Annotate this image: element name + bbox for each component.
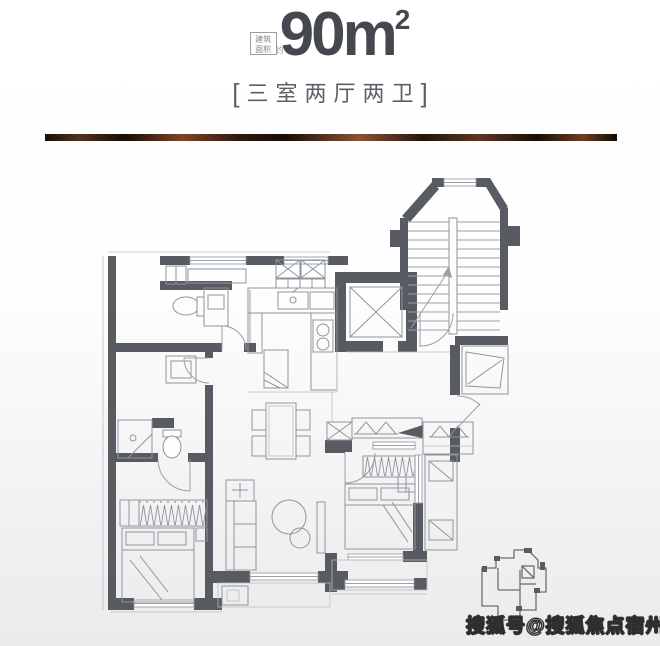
- window-bedroom: [134, 600, 194, 607]
- side-table: [226, 480, 254, 501]
- stair-direction-arrow: [411, 266, 452, 328]
- wardrobe-icon-2: [363, 456, 415, 477]
- entry-door-icon: [457, 396, 480, 428]
- floorplan-page: 建筑 面积 约 90m2 [三室两厅两卫]: [0, 0, 660, 646]
- fridge-icon: [264, 350, 288, 388]
- watermark-text: 搜狐号@搜狐焦点宿州站: [466, 611, 660, 638]
- ac-platform-east: [425, 455, 457, 550]
- utility-strip: [218, 583, 330, 607]
- door-arc-bedroom-left: [158, 459, 190, 491]
- sink-icon: [278, 288, 308, 309]
- elevator: [350, 287, 402, 337]
- toilet-icon: [173, 297, 204, 316]
- bed-icon-2: [345, 484, 415, 549]
- window-master-north: [373, 442, 415, 449]
- bathroom-lower: [118, 356, 209, 458]
- window-master-south: [348, 554, 403, 560]
- foyer: [327, 346, 508, 440]
- tv-cabinet: [317, 502, 325, 553]
- coffee-table-icon: [272, 500, 310, 548]
- door-arc-bath1: [222, 326, 246, 350]
- floor-plan: [0, 0, 660, 646]
- dining-table-icon: [266, 403, 296, 459]
- toilet-icon-2: [163, 430, 181, 458]
- living-room: [218, 480, 330, 607]
- vanity-icon: [204, 288, 228, 326]
- stove-icon: [313, 320, 333, 352]
- key-plan: [482, 548, 546, 620]
- sofa-icon: [226, 501, 256, 570]
- shoe-cabinet: [327, 422, 352, 440]
- bedroom-left: [120, 459, 207, 602]
- bed-icon: [122, 528, 194, 602]
- window-balcony: [345, 580, 414, 587]
- console-desk: [466, 352, 504, 388]
- window-master-east: [415, 455, 422, 503]
- wardrobe-icon: [120, 500, 207, 526]
- dining-area: [252, 403, 310, 459]
- master-bedroom: [332, 453, 427, 590]
- sink-icon-2: [166, 356, 196, 383]
- staircase: [408, 218, 500, 347]
- window-laundry: [190, 257, 246, 264]
- kitchen: [248, 288, 337, 392]
- window-stair: [444, 179, 476, 186]
- window-living: [250, 573, 318, 580]
- bathroom-top: [173, 288, 250, 350]
- shower-icon: [118, 420, 152, 458]
